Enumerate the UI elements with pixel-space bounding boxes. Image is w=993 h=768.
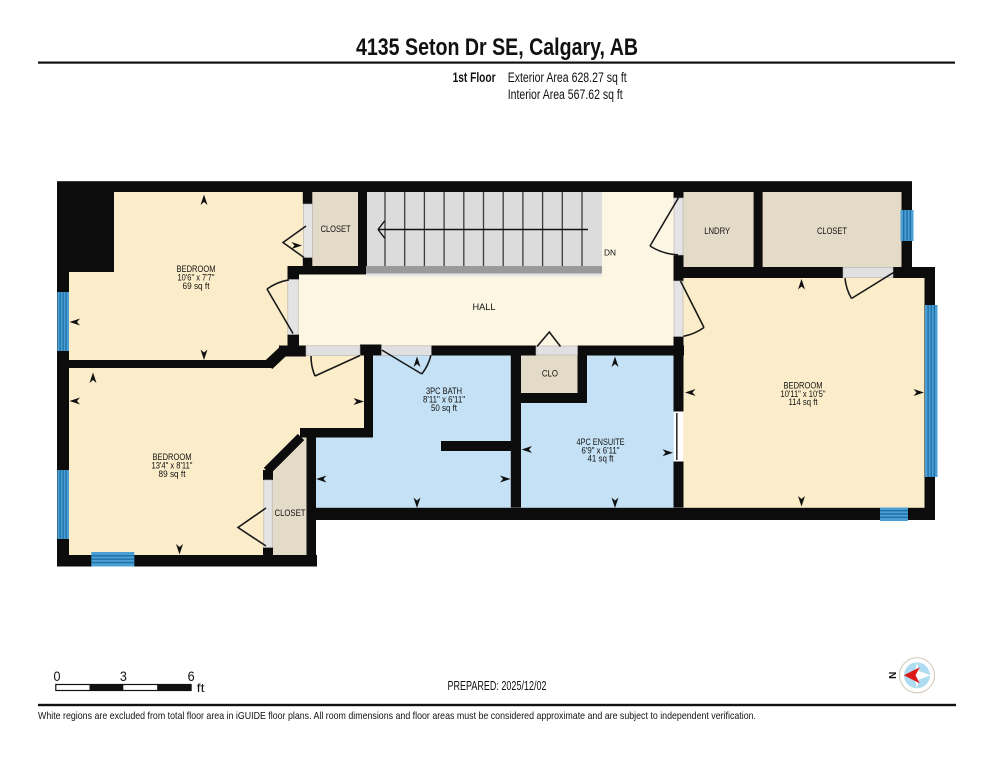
svg-text:CLOSET: CLOSET [275,508,306,518]
svg-text:4135 Seton Dr SE, Calgary, AB: 4135 Seton Dr SE, Calgary, AB [356,34,638,61]
svg-text:White regions are excluded fro: White regions are excluded from total fl… [38,710,756,722]
svg-text:DN: DN [604,248,616,258]
svg-text:41 sq ft: 41 sq ft [588,454,614,465]
svg-text:HALL: HALL [473,302,496,313]
svg-text:CLO: CLO [542,369,558,379]
svg-text:Exterior Area 628.27 sq ft: Exterior Area 628.27 sq ft [508,70,627,85]
svg-text:89 sq ft: 89 sq ft [159,469,186,480]
svg-text:PREPARED: 2025/12/02: PREPARED: 2025/12/02 [448,678,547,693]
svg-text:6: 6 [188,668,195,684]
svg-text:69 sq ft: 69 sq ft [183,281,210,292]
svg-text:0: 0 [54,668,61,684]
svg-text:Interior Area 567.62 sq ft: Interior Area 567.62 sq ft [508,87,623,102]
svg-text:3: 3 [120,668,127,684]
svg-text:50 sq ft: 50 sq ft [431,403,457,414]
svg-text:LNDRY: LNDRY [704,226,730,236]
svg-text:114 sq ft: 114 sq ft [789,397,818,408]
svg-text:1st Floor: 1st Floor [453,70,497,85]
svg-text:ft: ft [197,681,206,695]
svg-text:CLOSET: CLOSET [321,224,351,234]
svg-text:N: N [888,672,899,679]
svg-text:CLOSET: CLOSET [817,226,847,236]
